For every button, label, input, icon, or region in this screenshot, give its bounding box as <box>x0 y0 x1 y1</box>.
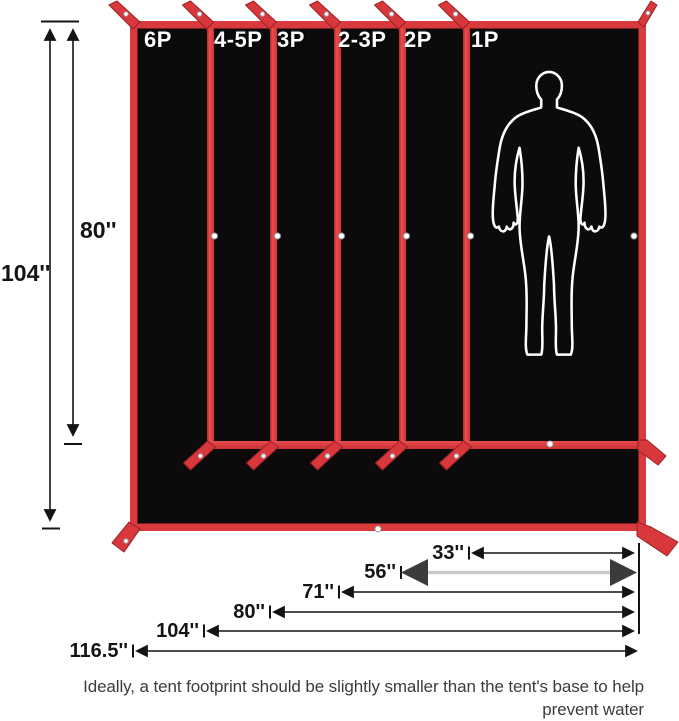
tarp-straps <box>109 1 678 556</box>
caption-line1: Ideally, a tent footprint should be slig… <box>30 676 644 721</box>
human-silhouette <box>493 72 606 355</box>
width-dim-label-116-5: 116.5'' <box>38 639 128 663</box>
height-dim-label-104: 104'' <box>1 260 50 286</box>
tent-footprint-size-diagram: 6P 4-5P 3P 2-3P 2P 1P <box>0 0 679 721</box>
height-dim-label-80: 80'' <box>80 217 117 243</box>
caption: Ideally, a tent footprint should be slig… <box>30 676 644 721</box>
diagram-annotations <box>0 0 679 721</box>
